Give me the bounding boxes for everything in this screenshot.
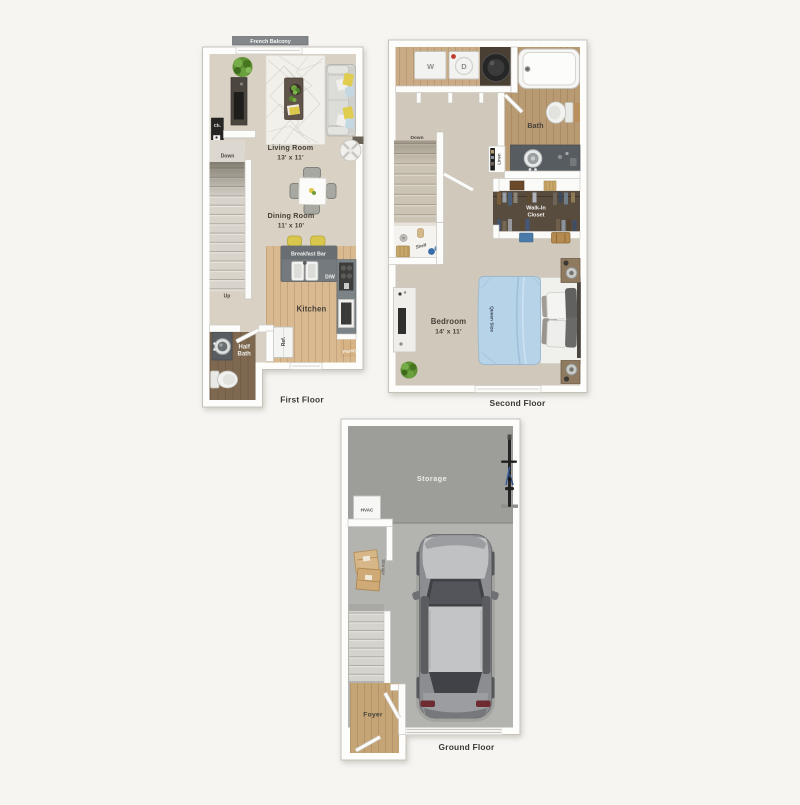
svg-text:Half: Half bbox=[239, 345, 251, 351]
svg-text:Dining Room: Dining Room bbox=[268, 211, 315, 220]
svg-text:13' x 11': 13' x 11' bbox=[277, 155, 304, 162]
svg-text:Kitchen: Kitchen bbox=[297, 305, 327, 314]
svg-text:D: D bbox=[461, 62, 467, 71]
svg-text:Ground Floor: Ground Floor bbox=[439, 742, 495, 752]
svg-text:Foyer: Foyer bbox=[363, 712, 383, 719]
svg-text:Bedroom: Bedroom bbox=[431, 317, 467, 326]
svg-text:Breakfast Bar: Breakfast Bar bbox=[291, 252, 327, 258]
svg-text:French Balcony: French Balcony bbox=[250, 39, 290, 45]
svg-text:HVAC: HVAC bbox=[361, 508, 374, 513]
svg-text:Walk-In: Walk-In bbox=[526, 206, 546, 212]
svg-text:Second Floor: Second Floor bbox=[490, 398, 546, 408]
svg-text:Down: Down bbox=[221, 154, 235, 160]
svg-text:Storage: Storage bbox=[417, 474, 447, 483]
svg-text:Bath: Bath bbox=[527, 123, 543, 130]
svg-text:Queen Size: Queen Size bbox=[489, 306, 495, 332]
svg-text:Microwave: Microwave bbox=[344, 306, 348, 321]
svg-text:Bath: Bath bbox=[238, 351, 252, 357]
svg-text:Down: Down bbox=[410, 135, 423, 141]
svg-text:W: W bbox=[427, 62, 435, 71]
svg-text:11' x 10': 11' x 10' bbox=[278, 223, 305, 230]
svg-text:Up: Up bbox=[224, 294, 231, 300]
svg-text:Storage: Storage bbox=[381, 559, 386, 575]
svg-text:Living Room: Living Room bbox=[268, 143, 314, 152]
svg-text:D/W: D/W bbox=[325, 275, 335, 281]
svg-text:Linen: Linen bbox=[497, 153, 502, 165]
svg-text:Closet: Closet bbox=[527, 213, 544, 219]
svg-text:14' x 11': 14' x 11' bbox=[435, 329, 462, 336]
svg-text:Ref.: Ref. bbox=[281, 336, 287, 346]
svg-text:Ch.: Ch. bbox=[214, 123, 221, 128]
svg-text:First Floor: First Floor bbox=[280, 395, 324, 405]
